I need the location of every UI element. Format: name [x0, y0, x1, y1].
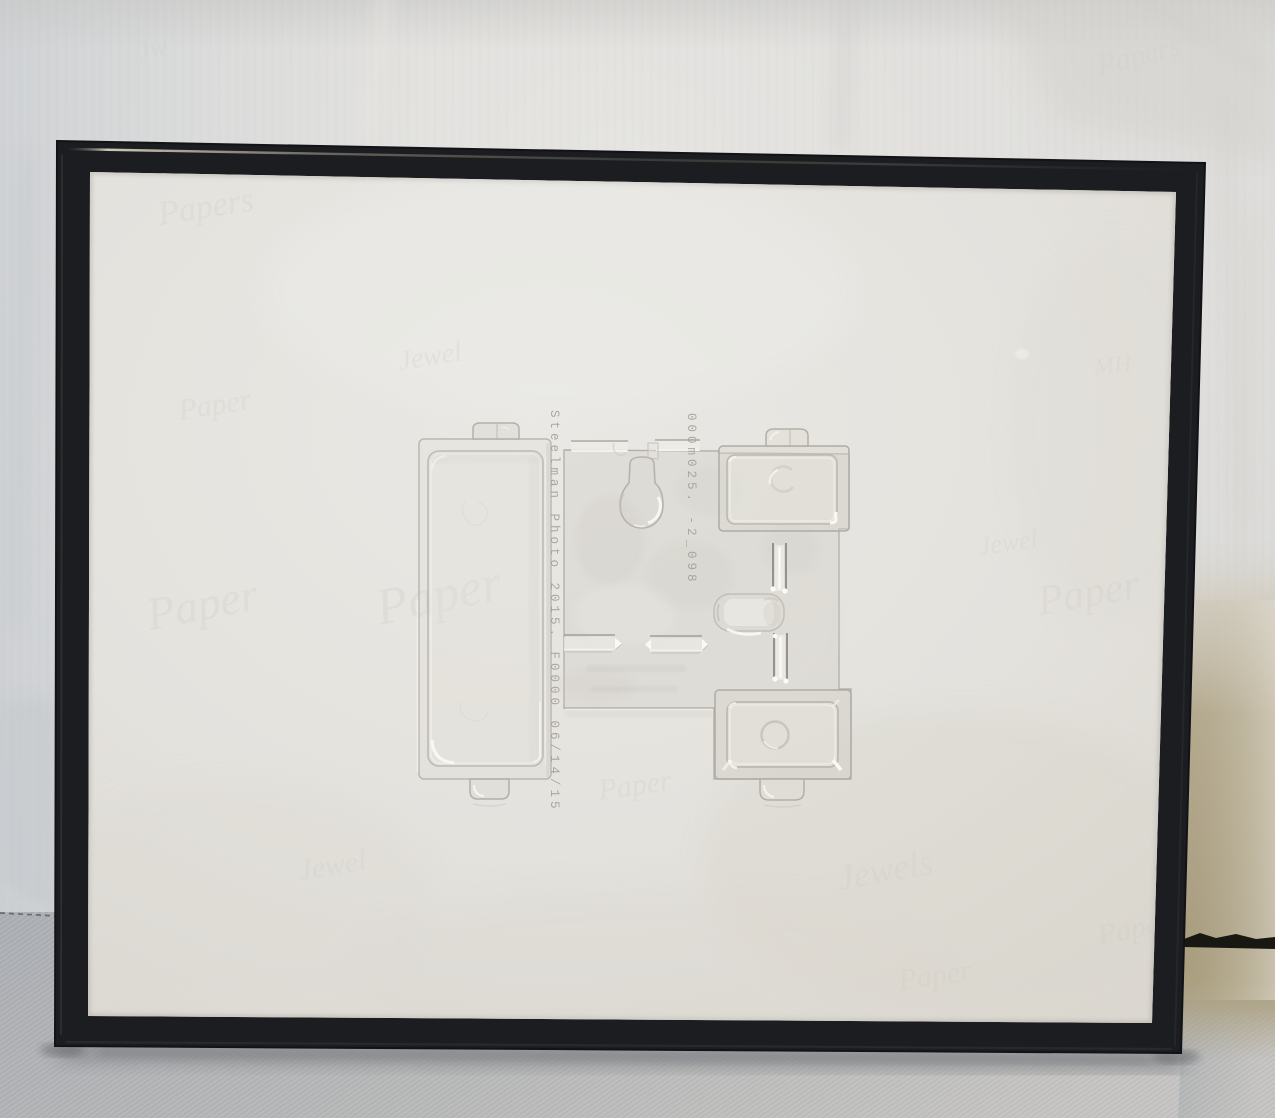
svg-text:Steelman Photo 2015. F0000 06/: Steelman Photo 2015. F0000 06/14/15	[547, 410, 561, 813]
svg-text:MH: MH	[1092, 351, 1134, 381]
svg-text:000m025. -2_098: 000m025. -2_098	[684, 413, 698, 586]
